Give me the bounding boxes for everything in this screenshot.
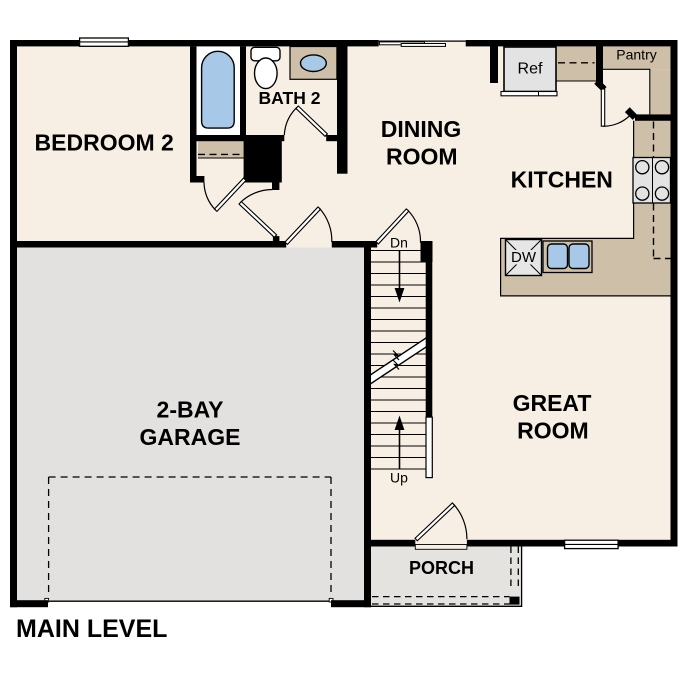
svg-text:Up: Up (390, 469, 408, 485)
svg-text:MAIN LEVEL: MAIN LEVEL (16, 615, 167, 643)
svg-text:ROOM: ROOM (517, 417, 589, 443)
svg-text:ROOM: ROOM (386, 144, 458, 170)
svg-text:DINING: DINING (381, 116, 462, 142)
svg-text:GREAT: GREAT (513, 390, 592, 416)
svg-text:Pantry: Pantry (616, 47, 656, 63)
svg-text:PORCH: PORCH (409, 558, 474, 578)
svg-text:BATH 2: BATH 2 (259, 88, 321, 108)
svg-text:KITCHEN: KITCHEN (511, 167, 613, 193)
svg-text:BEDROOM 2: BEDROOM 2 (35, 129, 174, 155)
svg-text:Dn: Dn (390, 234, 408, 250)
svg-text:DW: DW (511, 249, 537, 266)
svg-text:2-BAY: 2-BAY (157, 397, 224, 423)
svg-text:Ref: Ref (518, 61, 543, 78)
svg-text:GARAGE: GARAGE (140, 424, 241, 450)
